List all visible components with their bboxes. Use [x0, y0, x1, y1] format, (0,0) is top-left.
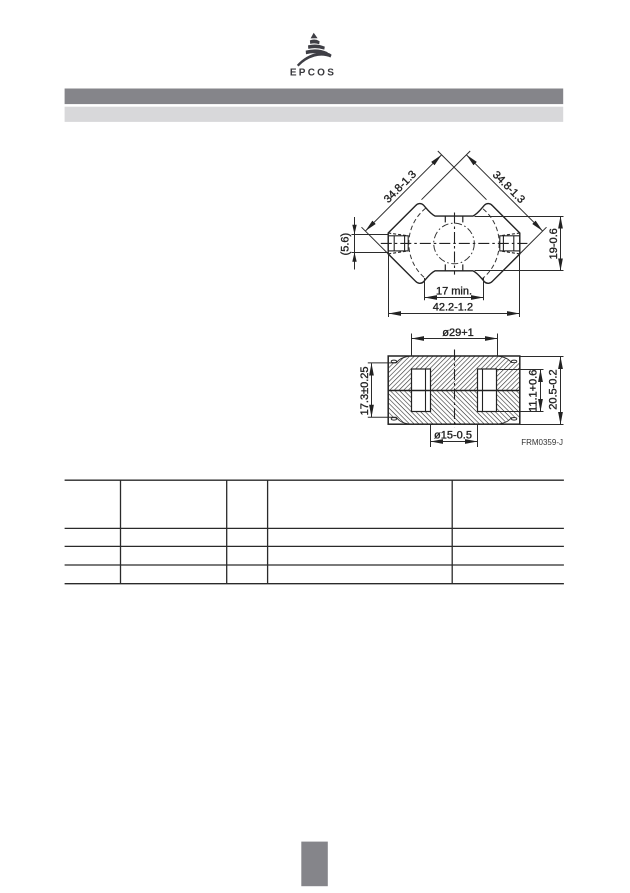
- svg-text:FRM0359-J: FRM0359-J: [521, 438, 563, 447]
- svg-text:17.3±0.25: 17.3±0.25: [359, 366, 371, 415]
- svg-text:34.8-1.3: 34.8-1.3: [382, 169, 419, 206]
- svg-text:19-0.6: 19-0.6: [548, 228, 560, 259]
- svg-text:17 min.: 17 min.: [436, 285, 472, 297]
- svg-text:(5.6): (5.6): [339, 233, 351, 256]
- svg-text:20.5-0.2: 20.5-0.2: [548, 369, 560, 409]
- svg-text:ø15-0.5: ø15-0.5: [434, 430, 472, 442]
- svg-text:ø29+1: ø29+1: [442, 327, 474, 339]
- svg-text:11.1+0.6: 11.1+0.6: [528, 370, 540, 412]
- svg-text:34.8-1.3: 34.8-1.3: [490, 169, 527, 206]
- svg-text:42.2-1.2: 42.2-1.2: [433, 302, 473, 314]
- svg-text:EPCOS: EPCOS: [290, 68, 336, 79]
